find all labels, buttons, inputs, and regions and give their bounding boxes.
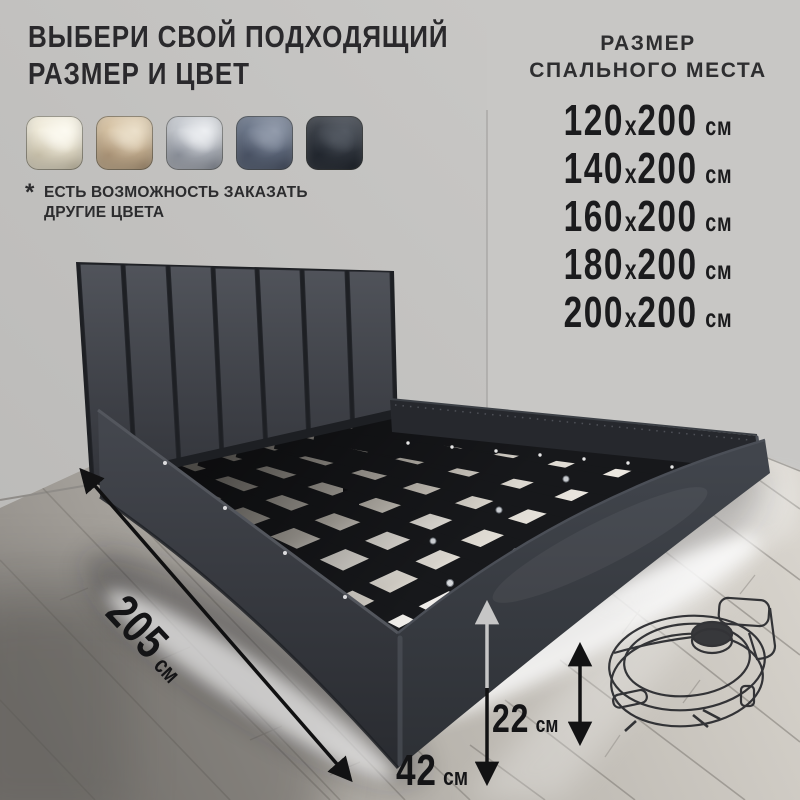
- size-option-140x200: 140x200см: [526, 145, 771, 193]
- dimension-floor-clearance-label: 22см: [492, 697, 558, 742]
- size-list: 120x200см 140x200см 160x200см 180x200см …: [487, 97, 800, 337]
- size-panel: РАЗМЕР СПАЛЬНОГО МЕСТА 120x200см 140x200…: [487, 30, 800, 337]
- product-card: ВЫБЕРИ СВОЙ ПОДХОДЯЩИЙ РАЗМЕР И ЦВЕТ * Е…: [0, 0, 800, 800]
- size-option-120x200: 120x200см: [526, 97, 771, 145]
- dimension-frame-height-label: 42см: [396, 746, 468, 796]
- page-title-line1: ВЫБЕРИ СВОЙ ПОДХОДЯЩИЙ: [28, 18, 448, 55]
- page-title-line2: РАЗМЕР И ЦВЕТ: [28, 55, 448, 92]
- fabric-swatch-dark-graphite: [306, 116, 363, 170]
- fabric-swatch-light-gray: [166, 116, 223, 170]
- page-title: ВЫБЕРИ СВОЙ ПОДХОДЯЩИЙ РАЗМЕР И ЦВЕТ: [28, 18, 448, 92]
- size-panel-header: РАЗМЕР СПАЛЬНОГО МЕСТА: [487, 30, 800, 84]
- size-option-160x200: 160x200см: [526, 193, 771, 241]
- note-line2: ДРУГИЕ ЦВЕТА: [44, 204, 164, 221]
- color-order-note: * ЕСТЬ ВОЗМОЖНОСТЬ ЗАКАЗАТЬ ДРУГИЕ ЦВЕТА: [25, 183, 308, 223]
- fabric-swatch-row: [26, 116, 363, 170]
- size-header-line1: РАЗМЕР: [487, 30, 800, 57]
- fabric-swatch-ivory: [26, 116, 83, 170]
- fabric-swatch-slate-blue-gray: [236, 116, 293, 170]
- asterisk: *: [25, 183, 44, 223]
- note-line1: ЕСТЬ ВОЗМОЖНОСТЬ ЗАКАЗАТЬ: [44, 184, 308, 201]
- size-option-200x200: 200x200см: [526, 289, 771, 337]
- size-header-line2: СПАЛЬНОГО МЕСТА: [487, 57, 800, 84]
- fabric-swatch-beige: [96, 116, 153, 170]
- size-option-180x200: 180x200см: [526, 241, 771, 289]
